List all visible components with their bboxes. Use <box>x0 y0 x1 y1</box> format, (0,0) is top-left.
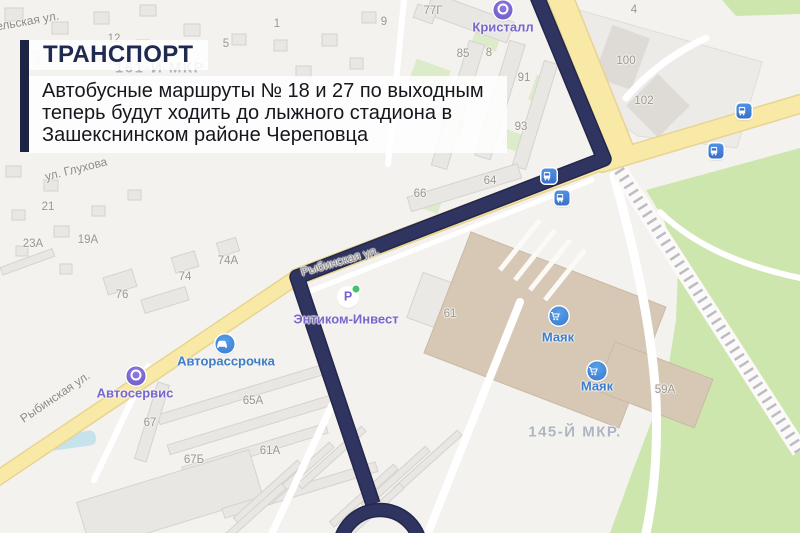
house-number: 5 <box>223 38 229 50</box>
house-number: 100 <box>616 55 635 67</box>
house-number: 21 <box>42 201 55 213</box>
ring-icon <box>131 370 142 381</box>
bus-stop-icon[interactable] <box>542 169 557 184</box>
house-number: 4 <box>631 4 637 16</box>
cart-icon <box>588 365 600 377</box>
house-number: 85 <box>457 48 470 60</box>
house-number: 65А <box>243 395 263 407</box>
house-number: 8 <box>486 47 492 59</box>
bus-icon <box>542 170 553 181</box>
bus-icon <box>555 192 566 203</box>
house-number: 93 <box>515 121 528 133</box>
ring-icon <box>498 4 509 15</box>
poi-label-mayak-1[interactable]: Маяк <box>542 330 574 345</box>
avtorassrochka-car-icon[interactable] <box>216 335 235 354</box>
cart-icon <box>550 310 562 322</box>
map-canvas[interactable]: Красносельская ул. ул. Глухова Рыбинская… <box>0 0 800 533</box>
bus-icon <box>709 145 720 156</box>
house-number: 64 <box>484 175 497 187</box>
house-number: 102 <box>634 95 653 107</box>
badge-dot <box>353 286 360 293</box>
poi-label-mayak-2[interactable]: Маяк <box>581 379 613 394</box>
headline-line: теперь будут ходить до лыжного стадиона … <box>42 103 497 125</box>
house-number: 1 <box>274 18 280 30</box>
category-banner: ТРАНСПОРТ <box>29 40 208 70</box>
house-number: 76 <box>116 289 129 301</box>
avtoservis-ring-icon[interactable] <box>127 367 146 386</box>
bus-icon <box>737 105 748 116</box>
entikom-parking-icon[interactable]: P <box>339 288 358 307</box>
district-label-145-mkr: 145-Й МКР. <box>528 424 622 441</box>
mayak-cart-icon[interactable] <box>588 362 607 381</box>
bus-stop-icon[interactable] <box>709 144 724 159</box>
house-number: 61 <box>444 308 457 320</box>
house-number: 9 <box>381 16 387 28</box>
house-number: 67Б <box>184 454 204 466</box>
car-icon <box>216 338 229 349</box>
poi-label-kristall[interactable]: Кристалл <box>472 20 533 35</box>
headline-line: Автобусные маршруты № 18 и 27 по выходны… <box>42 81 497 103</box>
house-number: 74 <box>179 271 192 283</box>
house-number: 61А <box>260 445 280 457</box>
house-number: 66 <box>414 188 427 200</box>
kristall-poi-ring-icon[interactable] <box>494 1 513 20</box>
house-number: 74А <box>218 255 238 267</box>
house-number: 19А <box>78 234 98 246</box>
house-number: 77Г <box>423 5 442 17</box>
bus-stop-icon[interactable] <box>555 191 570 206</box>
category-title: ТРАНСПОРТ <box>43 41 193 69</box>
headline-banner: Автобусные маршруты № 18 и 27 по выходны… <box>29 76 507 153</box>
headline-line: Зашекснинском районе Череповца <box>42 125 497 147</box>
house-number: 23А <box>23 238 43 250</box>
house-number: 67 <box>144 417 157 429</box>
house-number: 91 <box>518 72 531 84</box>
house-number: 59А <box>655 384 675 396</box>
bus-stop-icon[interactable] <box>737 104 752 119</box>
category-accent-bar <box>20 40 29 152</box>
poi-label-avtorassrochka[interactable]: Авторассрочка <box>177 354 275 369</box>
poi-label-avtoservis[interactable]: Автосервис <box>97 386 174 401</box>
poi-label-entikom[interactable]: Энтиком-Инвест <box>293 312 398 327</box>
mayak-cart-icon[interactable] <box>550 307 569 326</box>
